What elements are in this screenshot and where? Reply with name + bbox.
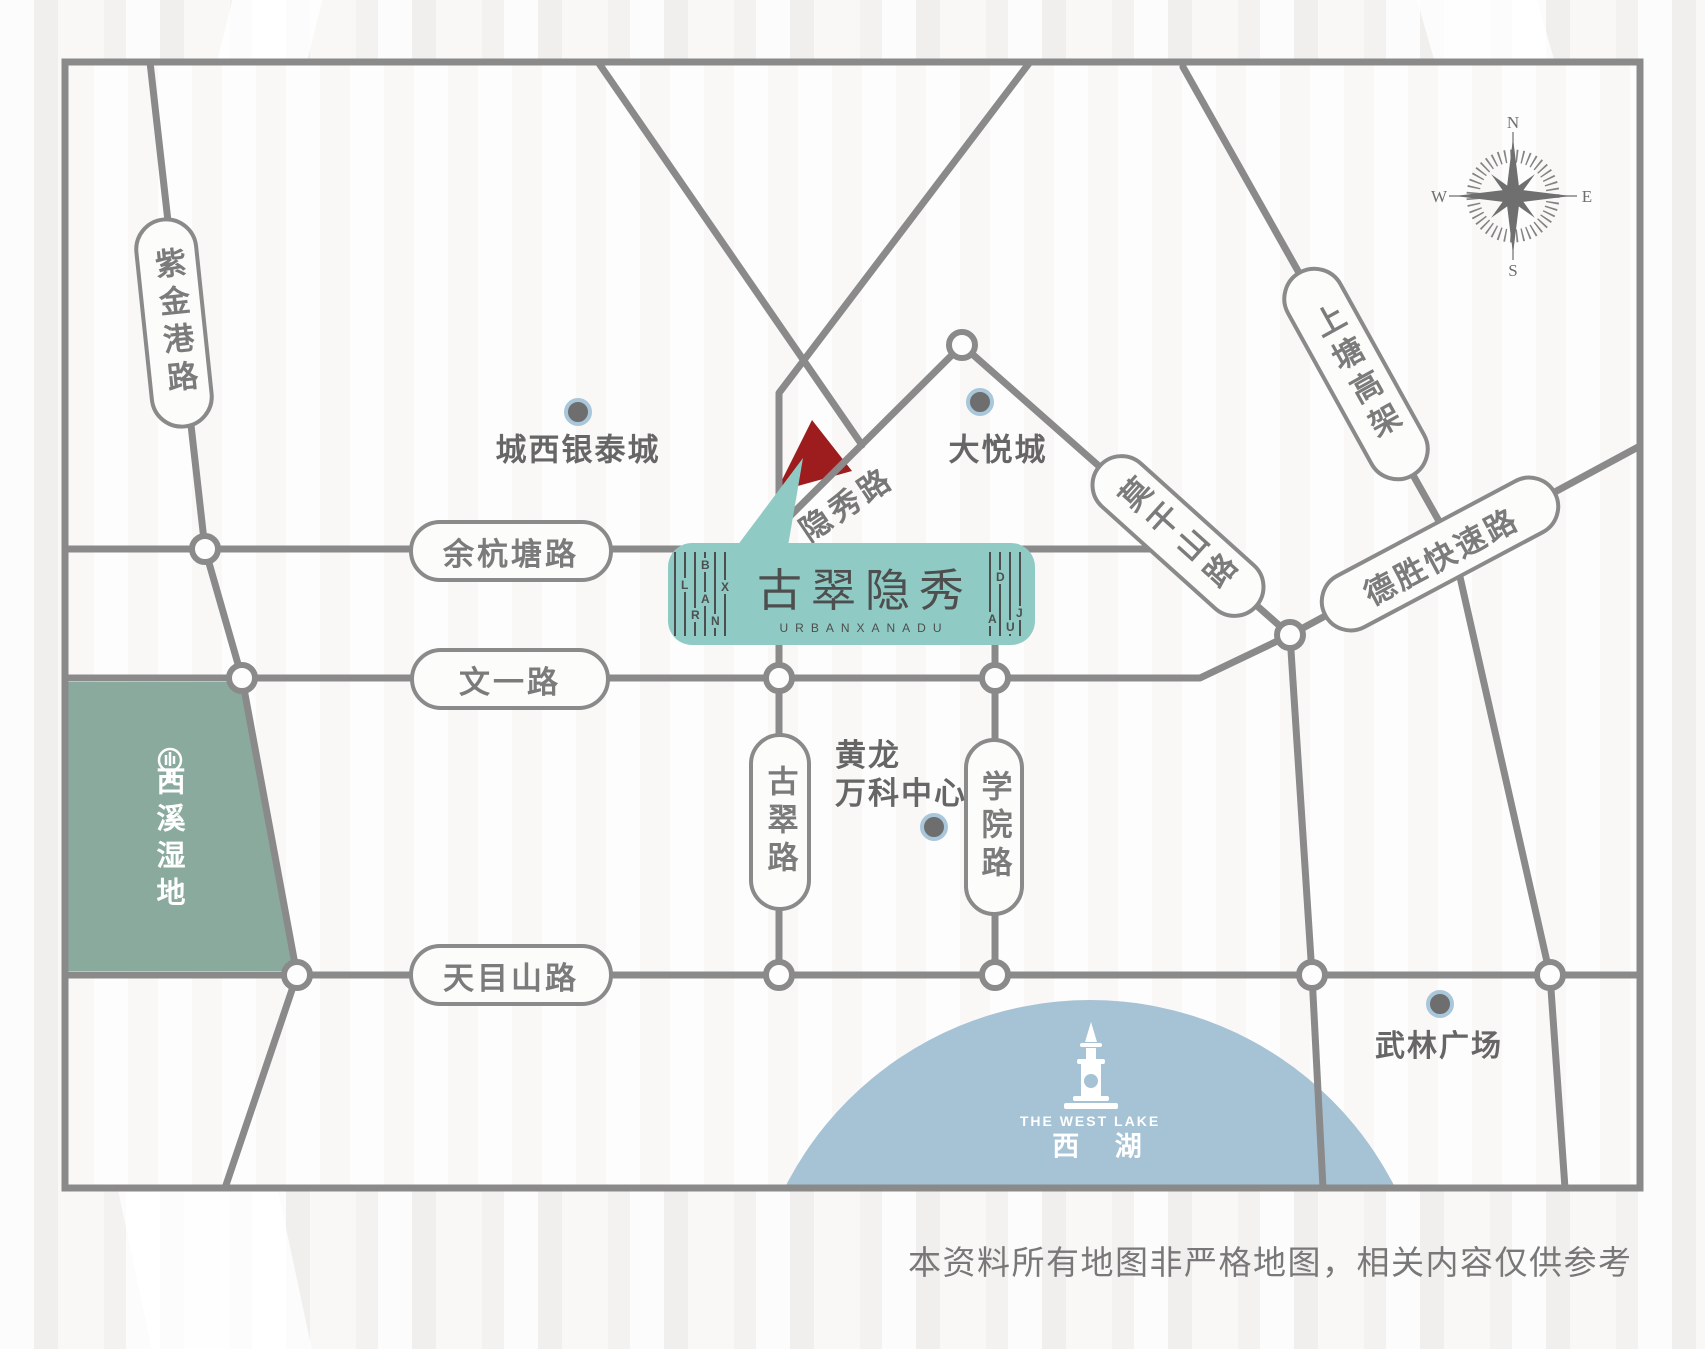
joy-city-dot xyxy=(968,390,992,414)
badge-letter: D xyxy=(996,570,1005,584)
pagoda-window xyxy=(1084,1074,1098,1088)
road-label-tianmushan: 天目山路 xyxy=(409,944,613,1006)
badge-deco-bars-left: L B R A N X xyxy=(674,552,732,636)
landmark-huanglong-vanke: 黄龙 万科中心 xyxy=(835,737,967,813)
huanglong-vanke-dot xyxy=(922,815,946,839)
road-label-wenyi: 文一路 xyxy=(410,648,610,710)
badge-letter: L xyxy=(681,578,688,592)
landmark-chengxi-intime: 城西银泰城 xyxy=(496,425,661,470)
badge-letter: N xyxy=(711,614,720,628)
compass-west-label: W xyxy=(1431,187,1448,206)
compass-east-label: E xyxy=(1582,187,1592,206)
road-label-gucui: 古翠路 xyxy=(749,733,811,911)
wulin-square-dot xyxy=(1428,992,1452,1016)
west-lake-label-cn: 西 湖 xyxy=(1038,1125,1156,1164)
badge-title: 古翠隐秀 URBANXANADU xyxy=(748,554,973,635)
badge-letter: B xyxy=(701,558,710,572)
landmark-joy-city: 大悦城 xyxy=(949,425,1048,470)
badge-letter: X xyxy=(721,580,729,594)
project-name-en: URBANXANADU xyxy=(772,621,948,635)
landmark-wulin-square: 武林广场 xyxy=(1375,1021,1503,1065)
project-name-cn: 古翠隐秀 xyxy=(748,554,973,619)
location-map-page: { "badge": { "title_cn": "古翠隐秀", "title_… xyxy=(0,0,1705,1349)
huanglong-line1: 黄龙 xyxy=(835,737,967,775)
badge-deco-bars-right: D A U J xyxy=(989,552,1029,636)
badge-letter: R xyxy=(691,608,700,622)
road-label-yuhangtang: 余杭塘路 xyxy=(409,520,613,582)
map-canvas: N S W E xyxy=(0,0,1705,1349)
badge-letter: U xyxy=(1006,620,1015,634)
road-label-xueyuan: 学院路 xyxy=(964,738,1024,916)
badge-letter: A xyxy=(988,612,997,626)
chengxi-intime-dot xyxy=(566,400,590,424)
compass-north-label: N xyxy=(1507,113,1519,132)
badge-letter: A xyxy=(701,592,710,606)
project-badge: L B R A N X 古翠隐秀 URBANXANADU D A U J xyxy=(668,543,1035,645)
badge-letter: J xyxy=(1016,606,1023,620)
xixi-wetland-label: 西溪湿地 xyxy=(147,766,189,914)
compass-south-label: S xyxy=(1508,261,1517,280)
huanglong-line2: 万科中心 xyxy=(835,775,967,813)
map-disclaimer: 本资料所有地图非严格地图，相关内容仅供参考 xyxy=(908,1236,1633,1284)
